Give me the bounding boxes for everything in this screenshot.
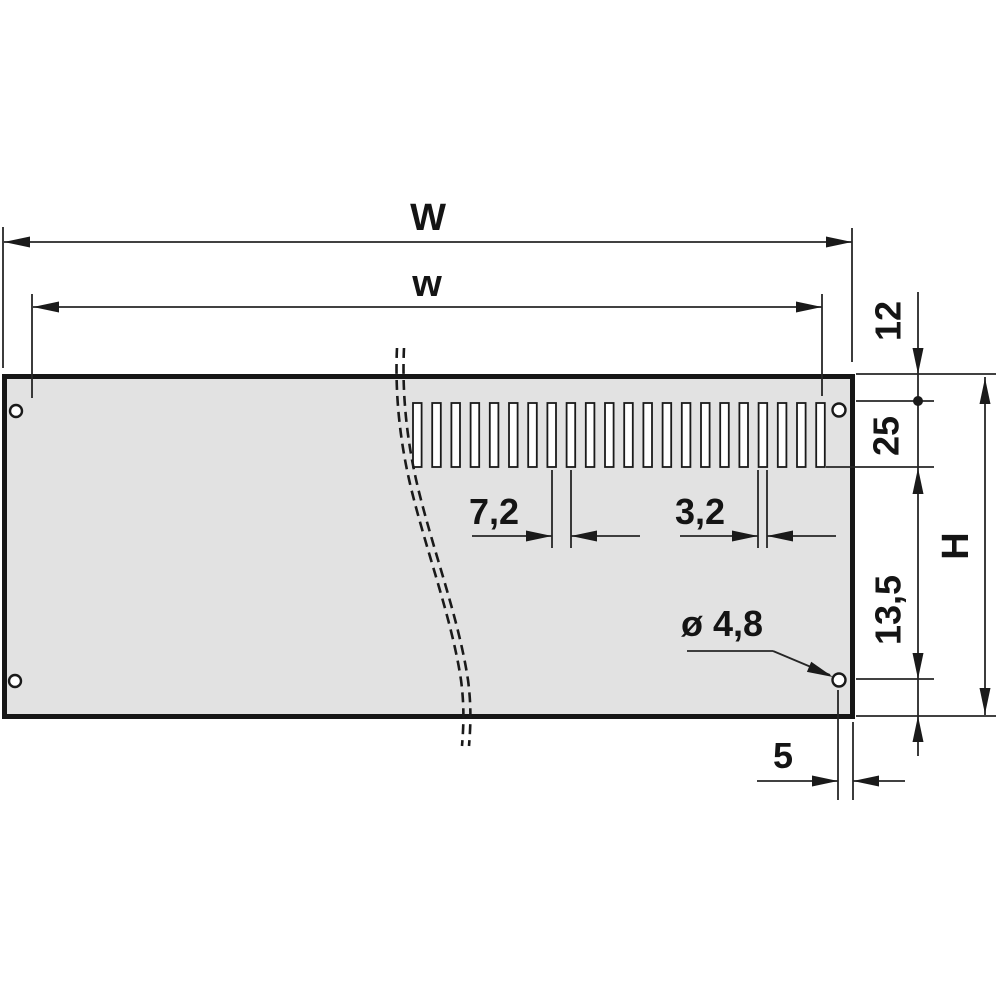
dim-label-7-2: 7,2: [469, 491, 519, 532]
vent-slot: [509, 403, 518, 467]
dim-overall-height: H: [935, 377, 991, 715]
dim-label-3-2: 3,2: [675, 491, 725, 532]
vent-slot: [471, 403, 480, 467]
vent-slot: [720, 403, 729, 467]
vent-slot: [778, 403, 787, 467]
arrowhead: [913, 716, 924, 742]
vent-slot: [797, 403, 806, 467]
vent-slot: [586, 403, 595, 467]
vent-slot: [759, 403, 768, 467]
mounting-hole-top-right: [833, 404, 846, 417]
dim-label-w: w: [411, 263, 442, 305]
arrowhead: [796, 302, 822, 313]
mounting-hole-bottom-right: [833, 674, 846, 687]
vent-slot: [413, 403, 422, 467]
arrowhead: [33, 302, 59, 313]
arrowhead: [913, 653, 924, 679]
arrowhead: [980, 688, 991, 714]
vent-slot: [567, 403, 576, 467]
vent-slot: [682, 403, 691, 467]
technical-drawing-page: W w 12 25 13,5 H: [0, 0, 1000, 1000]
arrowhead: [4, 237, 30, 248]
arrowhead: [980, 378, 991, 404]
vent-slot: [547, 403, 556, 467]
arrowhead: [913, 468, 924, 494]
dim-label-13-5: 13,5: [868, 575, 909, 645]
dimension-dot: [913, 396, 923, 406]
vent-slot: [739, 403, 748, 467]
dim-label-H: H: [935, 532, 977, 559]
dim-label-diameter: ø 4,8: [681, 603, 763, 644]
mounting-hole-bottom-left: [9, 675, 21, 687]
vent-slot: [451, 403, 460, 467]
arrowhead: [812, 776, 838, 787]
arrowhead: [913, 348, 924, 374]
vent-slot: [816, 403, 825, 467]
vent-slot: [490, 403, 499, 467]
vent-slot: [528, 403, 537, 467]
dim-label-5: 5: [773, 735, 793, 776]
dim-label-W: W: [410, 197, 446, 239]
vent-slot: [663, 403, 672, 467]
mounting-hole-top-left: [10, 405, 22, 417]
arrowhead: [853, 776, 879, 787]
vent-slot: [643, 403, 652, 467]
vent-slot: [605, 403, 614, 467]
vent-slot: [624, 403, 633, 467]
arrowhead: [826, 237, 852, 248]
vent-slot: [432, 403, 441, 467]
vent-slot: [701, 403, 710, 467]
dim-label-12: 12: [868, 301, 909, 341]
dimension-drawing: W w 12 25 13,5 H: [0, 0, 1000, 1000]
dim-label-25: 25: [866, 416, 907, 456]
